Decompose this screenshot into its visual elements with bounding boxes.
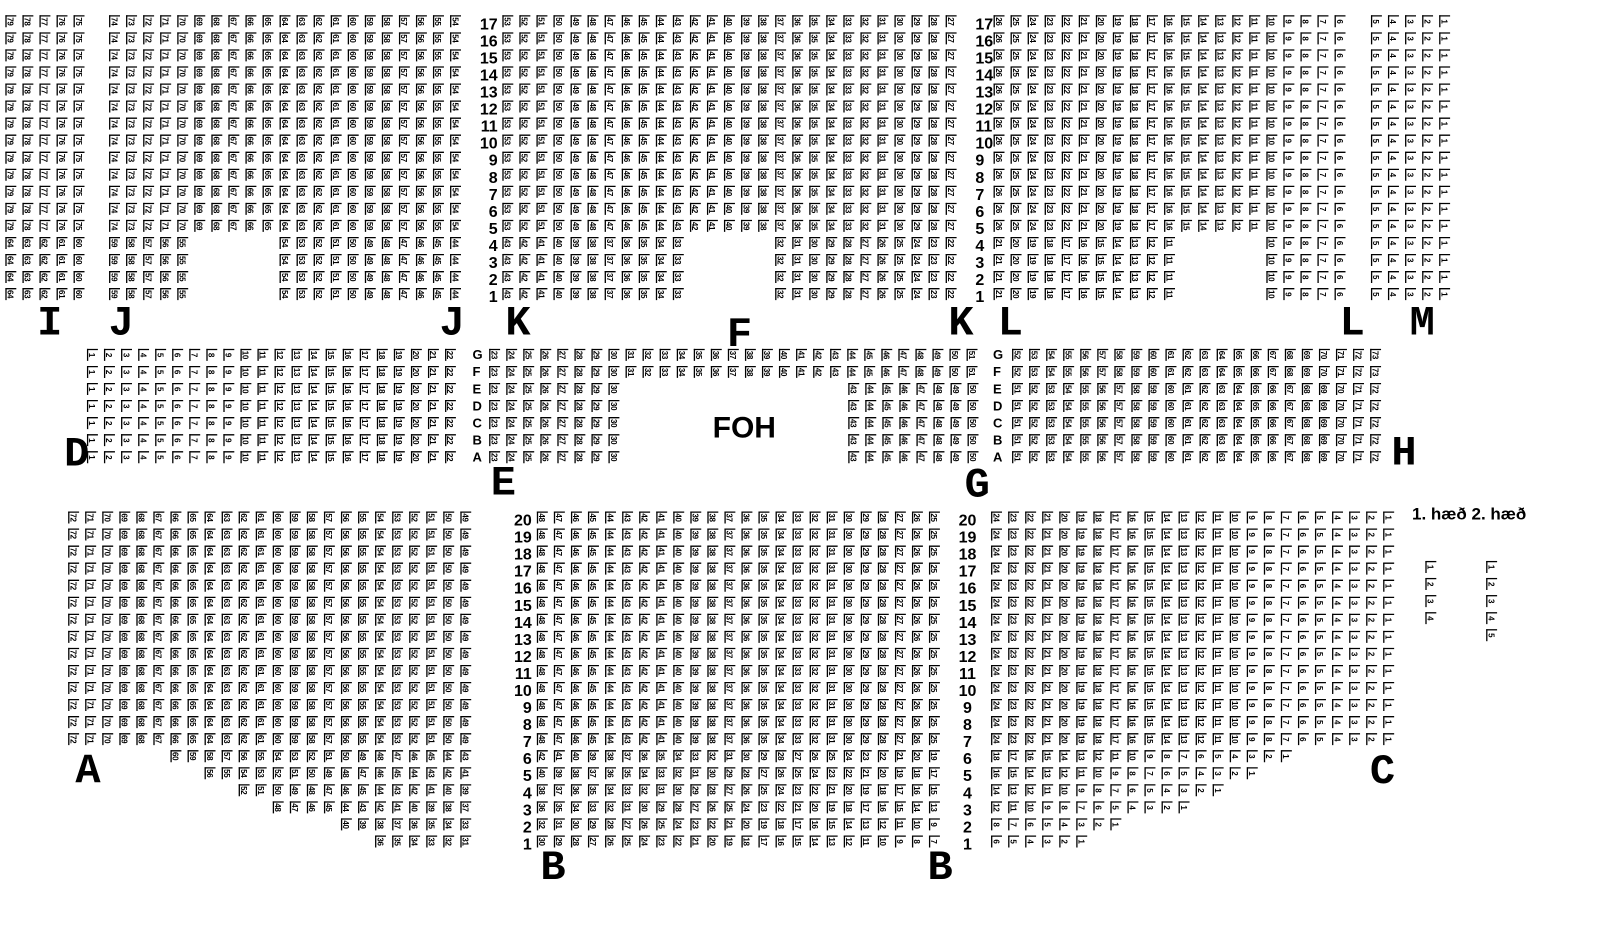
svg-text:65: 65 <box>188 633 197 642</box>
svg-text:33: 33 <box>657 769 666 778</box>
svg-text:17: 17 <box>929 769 938 778</box>
svg-text:J: J <box>439 300 464 348</box>
svg-text:26: 26 <box>912 599 921 608</box>
svg-text:L: L <box>1340 300 1365 348</box>
svg-text:26: 26 <box>541 419 550 428</box>
svg-text:7: 7 <box>1318 53 1327 58</box>
svg-text:40: 40 <box>724 205 733 214</box>
svg-text:11: 11 <box>1164 290 1173 299</box>
svg-text:2: 2 <box>1422 139 1431 144</box>
svg-text:48: 48 <box>588 137 597 146</box>
svg-text:61: 61 <box>256 701 265 710</box>
svg-text:13: 13 <box>1179 650 1188 659</box>
svg-text:41: 41 <box>657 616 666 625</box>
svg-text:55: 55 <box>358 667 367 676</box>
svg-text:69: 69 <box>195 120 204 129</box>
svg-text:52: 52 <box>520 68 529 77</box>
svg-text:61: 61 <box>1183 385 1192 394</box>
svg-text:6: 6 <box>1335 207 1344 212</box>
svg-text:55: 55 <box>358 735 367 744</box>
svg-text:44: 44 <box>866 436 875 445</box>
svg-text:42: 42 <box>690 222 699 231</box>
svg-text:60: 60 <box>348 222 357 231</box>
svg-text:55: 55 <box>1081 436 1090 445</box>
svg-text:H: H <box>1391 430 1416 478</box>
svg-text:18: 18 <box>1130 222 1139 231</box>
svg-text:26: 26 <box>994 154 1003 163</box>
svg-text:71: 71 <box>86 530 95 539</box>
svg-text:69: 69 <box>1319 453 1328 462</box>
svg-text:19: 19 <box>759 820 768 829</box>
svg-text:26: 26 <box>912 582 921 591</box>
svg-text:21: 21 <box>1043 633 1052 642</box>
svg-text:27: 27 <box>588 837 597 846</box>
svg-text:30: 30 <box>895 68 904 77</box>
svg-text:58: 58 <box>382 222 391 231</box>
svg-text:36: 36 <box>742 684 751 693</box>
svg-text:24: 24 <box>991 684 1000 693</box>
svg-text:50: 50 <box>444 735 453 744</box>
svg-text:42: 42 <box>639 701 648 710</box>
svg-text:63: 63 <box>1200 368 1209 377</box>
svg-text:41: 41 <box>392 803 401 812</box>
svg-text:28: 28 <box>878 633 887 642</box>
svg-text:6: 6 <box>1298 618 1307 623</box>
svg-text:36: 36 <box>793 120 802 129</box>
svg-text:20: 20 <box>708 837 717 846</box>
svg-text:67: 67 <box>154 530 163 539</box>
svg-text:29: 29 <box>827 290 836 299</box>
svg-text:41: 41 <box>707 85 716 94</box>
svg-text:39: 39 <box>691 513 700 522</box>
svg-text:51: 51 <box>537 17 546 26</box>
svg-text:16: 16 <box>1128 599 1137 608</box>
svg-text:6: 6 <box>1298 567 1307 572</box>
svg-text:43: 43 <box>426 769 435 778</box>
svg-text:24: 24 <box>810 769 819 778</box>
svg-text:61: 61 <box>331 68 340 77</box>
svg-text:53: 53 <box>503 188 512 197</box>
svg-text:51: 51 <box>1012 402 1021 411</box>
svg-text:48: 48 <box>537 616 546 625</box>
svg-text:63: 63 <box>297 34 306 43</box>
svg-text:7: 7 <box>1318 224 1327 229</box>
svg-text:18: 18 <box>377 402 386 411</box>
svg-text:17: 17 <box>1147 102 1156 111</box>
svg-text:42: 42 <box>639 565 648 574</box>
svg-text:44: 44 <box>375 786 384 795</box>
svg-text:74: 74 <box>109 222 118 231</box>
svg-text:35: 35 <box>639 256 648 265</box>
svg-text:13: 13 <box>514 632 532 649</box>
svg-text:12: 12 <box>1196 530 1205 539</box>
svg-text:54: 54 <box>280 290 289 299</box>
svg-text:43: 43 <box>673 102 682 111</box>
svg-text:3: 3 <box>489 255 498 272</box>
svg-text:42: 42 <box>690 102 699 111</box>
svg-text:3: 3 <box>1145 805 1154 810</box>
svg-text:26: 26 <box>912 565 921 574</box>
svg-text:62: 62 <box>314 120 323 129</box>
svg-text:56: 56 <box>160 256 169 265</box>
svg-text:52: 52 <box>409 565 418 574</box>
svg-text:39: 39 <box>691 684 700 693</box>
svg-text:10: 10 <box>1267 102 1276 111</box>
svg-text:30: 30 <box>810 290 819 299</box>
svg-text:9: 9 <box>1284 292 1293 297</box>
svg-text:63: 63 <box>1200 351 1209 360</box>
svg-text:57: 57 <box>1115 453 1124 462</box>
svg-text:64: 64 <box>280 154 289 163</box>
svg-text:14: 14 <box>1162 582 1171 591</box>
svg-text:20: 20 <box>1096 17 1105 26</box>
svg-text:21: 21 <box>793 803 802 812</box>
svg-text:48: 48 <box>537 718 546 727</box>
svg-text:9: 9 <box>1284 224 1293 229</box>
svg-text:53: 53 <box>297 273 306 282</box>
svg-text:35: 35 <box>810 68 819 77</box>
svg-text:72: 72 <box>1370 385 1379 394</box>
svg-text:67: 67 <box>154 616 163 625</box>
svg-text:59: 59 <box>290 735 299 744</box>
svg-text:58: 58 <box>307 513 316 522</box>
svg-text:16: 16 <box>343 351 352 360</box>
svg-text:26: 26 <box>994 85 1003 94</box>
svg-text:51: 51 <box>426 650 435 659</box>
svg-text:38: 38 <box>444 803 453 812</box>
svg-text:6: 6 <box>1335 224 1344 229</box>
svg-text:62: 62 <box>1183 351 1192 360</box>
svg-text:32: 32 <box>810 616 819 625</box>
svg-text:21: 21 <box>428 385 437 394</box>
svg-text:36: 36 <box>742 701 751 710</box>
svg-text:57: 57 <box>399 17 408 26</box>
svg-text:18: 18 <box>1094 701 1103 710</box>
svg-text:34: 34 <box>827 68 836 77</box>
svg-text:2: 2 <box>963 819 972 836</box>
svg-text:20: 20 <box>1060 530 1069 539</box>
svg-text:68: 68 <box>137 530 146 539</box>
svg-text:42: 42 <box>690 137 699 146</box>
svg-text:34: 34 <box>776 735 785 744</box>
svg-text:24: 24 <box>991 513 1000 522</box>
svg-text:13: 13 <box>1216 85 1225 94</box>
svg-text:65: 65 <box>188 718 197 727</box>
svg-text:22: 22 <box>946 256 955 265</box>
svg-text:60: 60 <box>273 718 282 727</box>
svg-text:42: 42 <box>639 513 648 522</box>
svg-text:28: 28 <box>844 239 853 248</box>
svg-text:21: 21 <box>1079 68 1088 77</box>
svg-text:60: 60 <box>348 188 357 197</box>
svg-text:29: 29 <box>592 453 601 462</box>
svg-text:51: 51 <box>967 368 976 377</box>
svg-text:21: 21 <box>994 290 1003 299</box>
svg-text:1: 1 <box>87 387 96 392</box>
svg-text:13: 13 <box>1077 752 1086 761</box>
svg-text:11: 11 <box>1043 786 1052 795</box>
svg-text:49: 49 <box>461 513 470 522</box>
svg-text:76: 76 <box>57 154 66 163</box>
svg-text:31: 31 <box>793 290 802 299</box>
svg-text:10: 10 <box>1267 51 1276 60</box>
svg-text:43: 43 <box>622 718 631 727</box>
svg-text:16: 16 <box>1164 17 1173 26</box>
svg-text:25: 25 <box>827 752 836 761</box>
svg-text:39: 39 <box>691 530 700 539</box>
svg-text:2: 2 <box>1422 36 1431 41</box>
svg-text:63: 63 <box>222 684 231 693</box>
svg-text:24: 24 <box>912 256 921 265</box>
svg-text:18: 18 <box>1094 684 1103 693</box>
svg-text:2: 2 <box>1422 224 1431 229</box>
svg-text:1: 1 <box>1439 53 1448 58</box>
svg-text:45: 45 <box>865 351 874 360</box>
svg-text:4: 4 <box>1332 584 1341 589</box>
svg-text:57: 57 <box>324 667 333 676</box>
svg-text:17: 17 <box>1111 667 1120 676</box>
svg-text:5: 5 <box>155 438 164 443</box>
svg-text:48: 48 <box>307 786 316 795</box>
svg-text:26: 26 <box>912 616 921 625</box>
svg-text:1: 1 <box>489 289 498 306</box>
svg-text:69: 69 <box>195 51 204 60</box>
svg-text:30: 30 <box>810 239 819 248</box>
svg-text:25: 25 <box>524 385 533 394</box>
svg-text:23: 23 <box>827 769 836 778</box>
svg-text:61: 61 <box>256 650 265 659</box>
svg-text:21: 21 <box>994 239 1003 248</box>
svg-text:25: 25 <box>1011 137 1020 146</box>
svg-text:6: 6 <box>1298 652 1307 657</box>
svg-text:9: 9 <box>1284 258 1293 263</box>
svg-text:66: 66 <box>246 34 255 43</box>
svg-text:17: 17 <box>1111 616 1120 625</box>
svg-text:52: 52 <box>520 205 529 214</box>
svg-text:27: 27 <box>861 256 870 265</box>
svg-text:20: 20 <box>1060 599 1069 608</box>
svg-text:68: 68 <box>1302 453 1311 462</box>
svg-text:44: 44 <box>656 154 665 163</box>
svg-text:30: 30 <box>895 120 904 129</box>
svg-text:55: 55 <box>433 188 442 197</box>
svg-text:35: 35 <box>759 718 768 727</box>
svg-text:22: 22 <box>445 402 454 411</box>
svg-text:17: 17 <box>360 351 369 360</box>
svg-text:7: 7 <box>1077 805 1086 810</box>
svg-text:20: 20 <box>810 803 819 812</box>
svg-text:45: 45 <box>639 188 648 197</box>
svg-text:39: 39 <box>762 351 771 360</box>
svg-text:36: 36 <box>375 837 384 846</box>
svg-text:66: 66 <box>171 547 180 556</box>
svg-text:32: 32 <box>861 17 870 26</box>
svg-text:71: 71 <box>1353 419 1362 428</box>
svg-text:49: 49 <box>571 102 580 111</box>
svg-text:26: 26 <box>639 820 648 829</box>
svg-text:15: 15 <box>929 786 938 795</box>
svg-text:20: 20 <box>742 820 751 829</box>
svg-text:26: 26 <box>994 205 1003 214</box>
svg-text:12: 12 <box>1147 290 1156 299</box>
svg-text:19: 19 <box>1077 650 1086 659</box>
svg-text:56: 56 <box>416 188 425 197</box>
svg-text:44: 44 <box>866 419 875 428</box>
svg-text:21: 21 <box>1079 85 1088 94</box>
svg-text:45: 45 <box>639 222 648 231</box>
svg-text:20: 20 <box>411 368 420 377</box>
svg-text:43: 43 <box>673 188 682 197</box>
svg-text:46: 46 <box>341 786 350 795</box>
svg-text:17: 17 <box>1111 684 1120 693</box>
svg-text:16: 16 <box>878 803 887 812</box>
svg-text:69: 69 <box>120 513 129 522</box>
svg-text:44: 44 <box>656 120 665 129</box>
svg-text:49: 49 <box>461 616 470 625</box>
svg-text:69: 69 <box>120 547 129 556</box>
svg-text:18: 18 <box>1130 171 1139 180</box>
svg-text:35: 35 <box>759 701 768 710</box>
svg-text:54: 54 <box>1064 402 1073 411</box>
svg-text:71: 71 <box>1353 385 1362 394</box>
svg-text:32: 32 <box>775 273 784 282</box>
svg-text:39: 39 <box>691 650 700 659</box>
svg-text:61: 61 <box>331 51 340 60</box>
svg-text:56: 56 <box>341 582 350 591</box>
svg-text:55: 55 <box>222 769 231 778</box>
svg-text:11: 11 <box>1213 735 1222 744</box>
svg-text:45: 45 <box>588 530 597 539</box>
svg-text:38: 38 <box>758 154 767 163</box>
svg-text:65: 65 <box>188 701 197 710</box>
svg-text:78: 78 <box>23 120 32 129</box>
svg-text:61: 61 <box>331 171 340 180</box>
svg-text:71: 71 <box>1353 453 1362 462</box>
svg-text:20: 20 <box>1060 701 1069 710</box>
svg-text:5: 5 <box>1371 36 1380 41</box>
svg-text:32: 32 <box>444 837 453 846</box>
svg-text:21: 21 <box>1079 171 1088 180</box>
svg-text:52: 52 <box>520 137 529 146</box>
svg-text:31: 31 <box>878 137 887 146</box>
svg-text:36: 36 <box>711 351 720 360</box>
svg-text:21: 21 <box>428 436 437 445</box>
svg-text:71: 71 <box>86 735 95 744</box>
svg-text:41: 41 <box>707 51 716 60</box>
svg-text:34: 34 <box>571 803 580 812</box>
svg-text:7: 7 <box>489 187 498 204</box>
svg-text:4: 4 <box>138 404 147 409</box>
svg-text:48: 48 <box>537 513 546 522</box>
svg-text:13: 13 <box>959 632 977 649</box>
svg-text:67: 67 <box>229 85 238 94</box>
svg-text:70: 70 <box>178 51 187 60</box>
svg-text:66: 66 <box>1251 368 1260 377</box>
svg-text:24: 24 <box>1028 34 1037 43</box>
svg-text:61: 61 <box>331 205 340 214</box>
svg-text:68: 68 <box>212 51 221 60</box>
svg-text:14: 14 <box>1198 154 1207 163</box>
svg-text:15: 15 <box>326 385 335 394</box>
svg-text:43: 43 <box>461 752 470 761</box>
svg-text:20: 20 <box>1060 513 1069 522</box>
svg-text:21: 21 <box>1043 582 1052 591</box>
svg-text:57: 57 <box>324 547 333 556</box>
svg-text:20: 20 <box>844 786 853 795</box>
svg-text:11: 11 <box>1213 718 1222 727</box>
svg-text:62: 62 <box>239 513 248 522</box>
svg-text:56: 56 <box>341 547 350 556</box>
svg-text:9: 9 <box>523 700 532 717</box>
svg-text:70: 70 <box>178 188 187 197</box>
svg-text:12: 12 <box>1196 684 1205 693</box>
svg-text:19: 19 <box>1077 735 1086 744</box>
svg-text:34: 34 <box>776 513 785 522</box>
svg-text:6: 6 <box>991 839 1000 844</box>
svg-text:5: 5 <box>1371 173 1380 178</box>
svg-text:20: 20 <box>1096 137 1105 146</box>
svg-text:3: 3 <box>1349 567 1358 572</box>
svg-text:30: 30 <box>844 565 853 574</box>
svg-text:52: 52 <box>273 769 282 778</box>
svg-text:50: 50 <box>307 769 316 778</box>
svg-text:44: 44 <box>656 171 665 180</box>
svg-text:51: 51 <box>426 718 435 727</box>
svg-text:14: 14 <box>959 615 977 632</box>
svg-text:15: 15 <box>326 436 335 445</box>
svg-text:57: 57 <box>399 171 408 180</box>
svg-text:69: 69 <box>195 154 204 163</box>
svg-text:59: 59 <box>365 171 374 180</box>
svg-text:37: 37 <box>775 120 784 129</box>
svg-text:12: 12 <box>1196 565 1205 574</box>
svg-text:3: 3 <box>1405 19 1414 24</box>
svg-text:68: 68 <box>212 34 221 43</box>
svg-text:19: 19 <box>1077 701 1086 710</box>
svg-text:6: 6 <box>1162 771 1171 776</box>
svg-text:20: 20 <box>1060 547 1069 556</box>
svg-text:47: 47 <box>554 667 563 676</box>
svg-text:27: 27 <box>895 701 904 710</box>
svg-text:13: 13 <box>975 85 993 102</box>
svg-text:57: 57 <box>399 205 408 214</box>
svg-text:48: 48 <box>588 171 597 180</box>
svg-text:C: C <box>1370 748 1395 796</box>
svg-text:47: 47 <box>399 239 408 248</box>
svg-text:43: 43 <box>622 633 631 642</box>
svg-text:8: 8 <box>1264 737 1273 742</box>
svg-text:66: 66 <box>246 137 255 146</box>
svg-text:73: 73 <box>126 68 135 77</box>
svg-text:70: 70 <box>103 547 112 556</box>
svg-text:68: 68 <box>212 205 221 214</box>
svg-text:33: 33 <box>844 68 853 77</box>
svg-text:24: 24 <box>674 820 683 829</box>
svg-text:23: 23 <box>759 803 768 812</box>
svg-text:57: 57 <box>1098 368 1107 377</box>
svg-text:19: 19 <box>1077 513 1086 522</box>
svg-text:38: 38 <box>375 820 384 829</box>
svg-text:6: 6 <box>1298 720 1307 725</box>
svg-text:36: 36 <box>742 513 751 522</box>
svg-text:19: 19 <box>1077 530 1086 539</box>
svg-text:60: 60 <box>171 752 180 761</box>
svg-text:29: 29 <box>912 171 921 180</box>
svg-text:41: 41 <box>657 565 666 574</box>
svg-text:20: 20 <box>1060 667 1069 676</box>
svg-text:71: 71 <box>160 51 169 60</box>
svg-text:43: 43 <box>622 701 631 710</box>
